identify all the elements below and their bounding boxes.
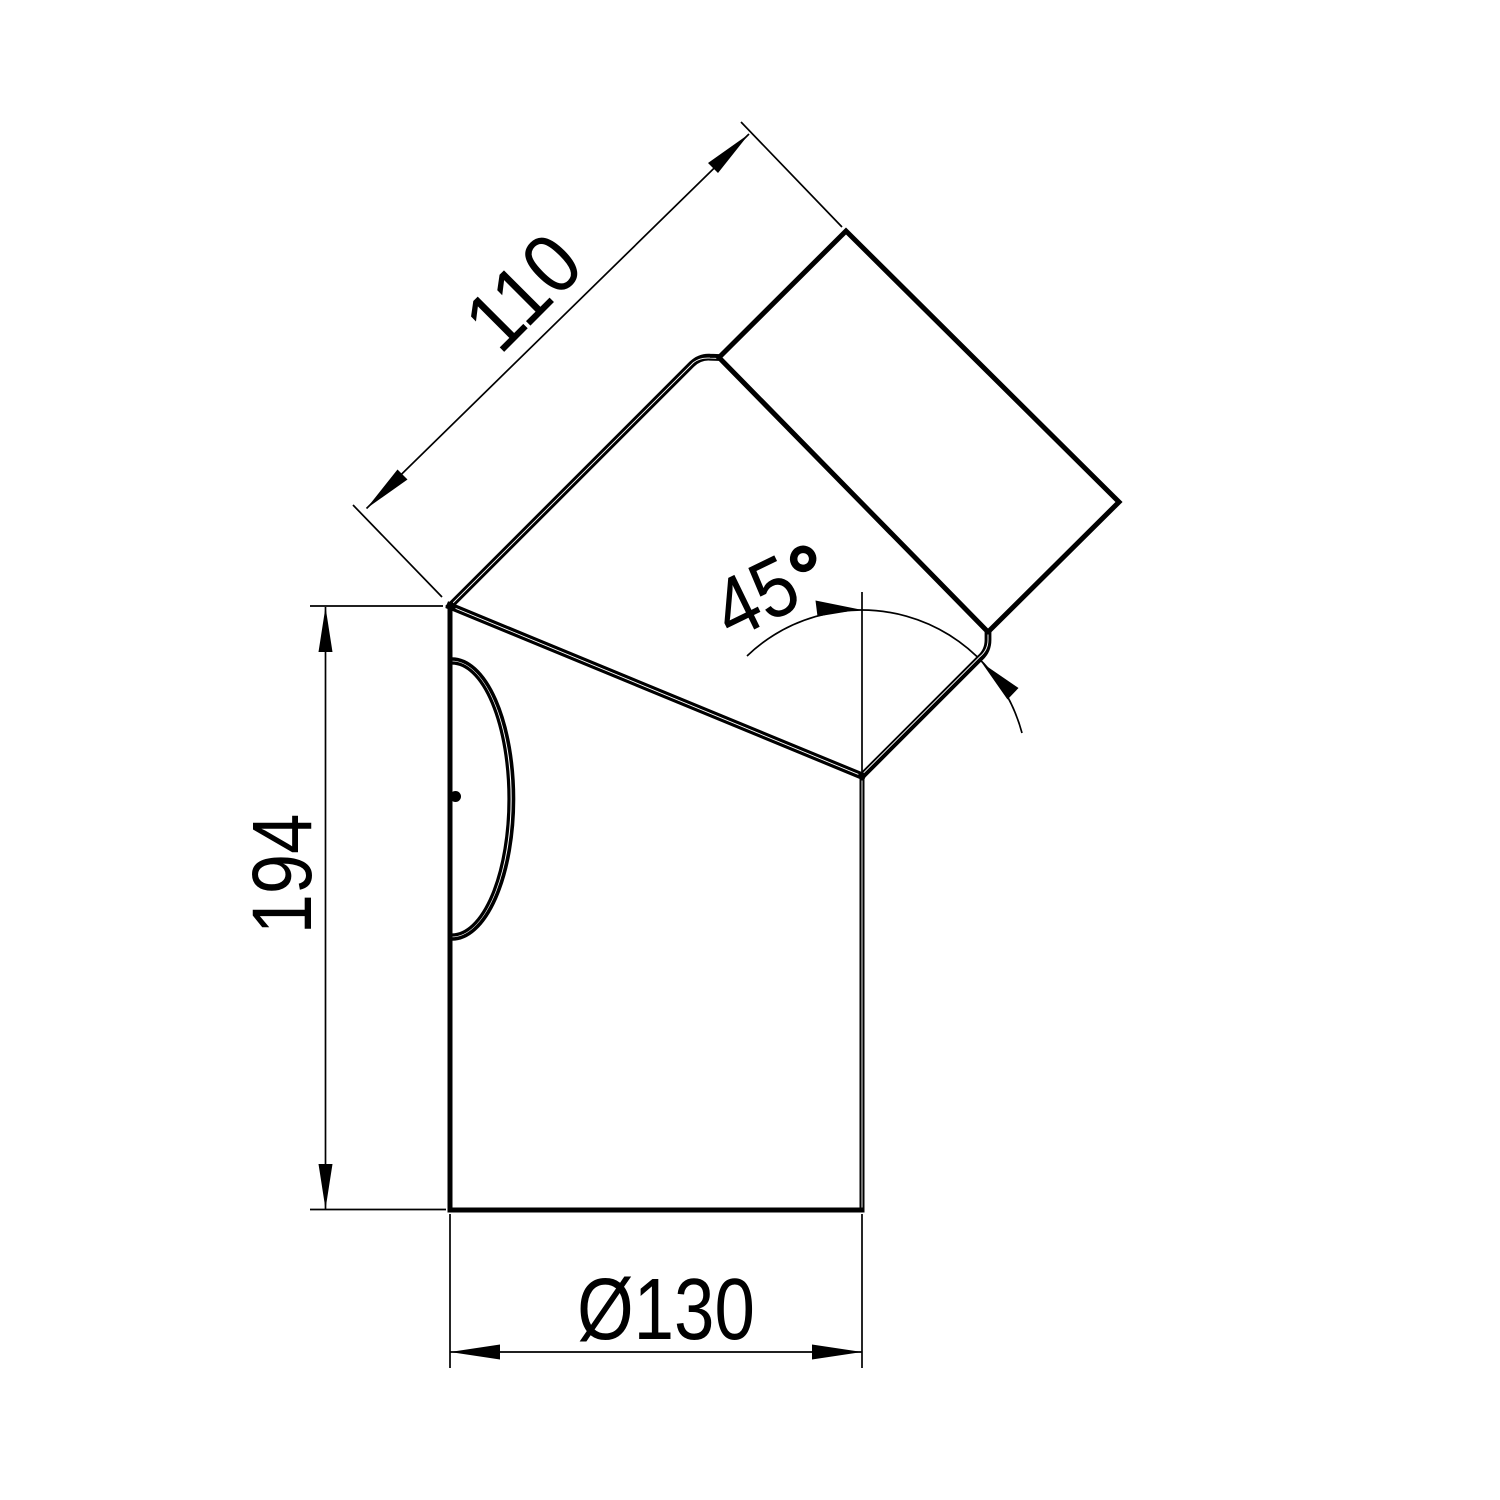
svg-text:194: 194	[235, 814, 329, 935]
svg-text:Ø130: Ø130	[577, 1260, 755, 1358]
